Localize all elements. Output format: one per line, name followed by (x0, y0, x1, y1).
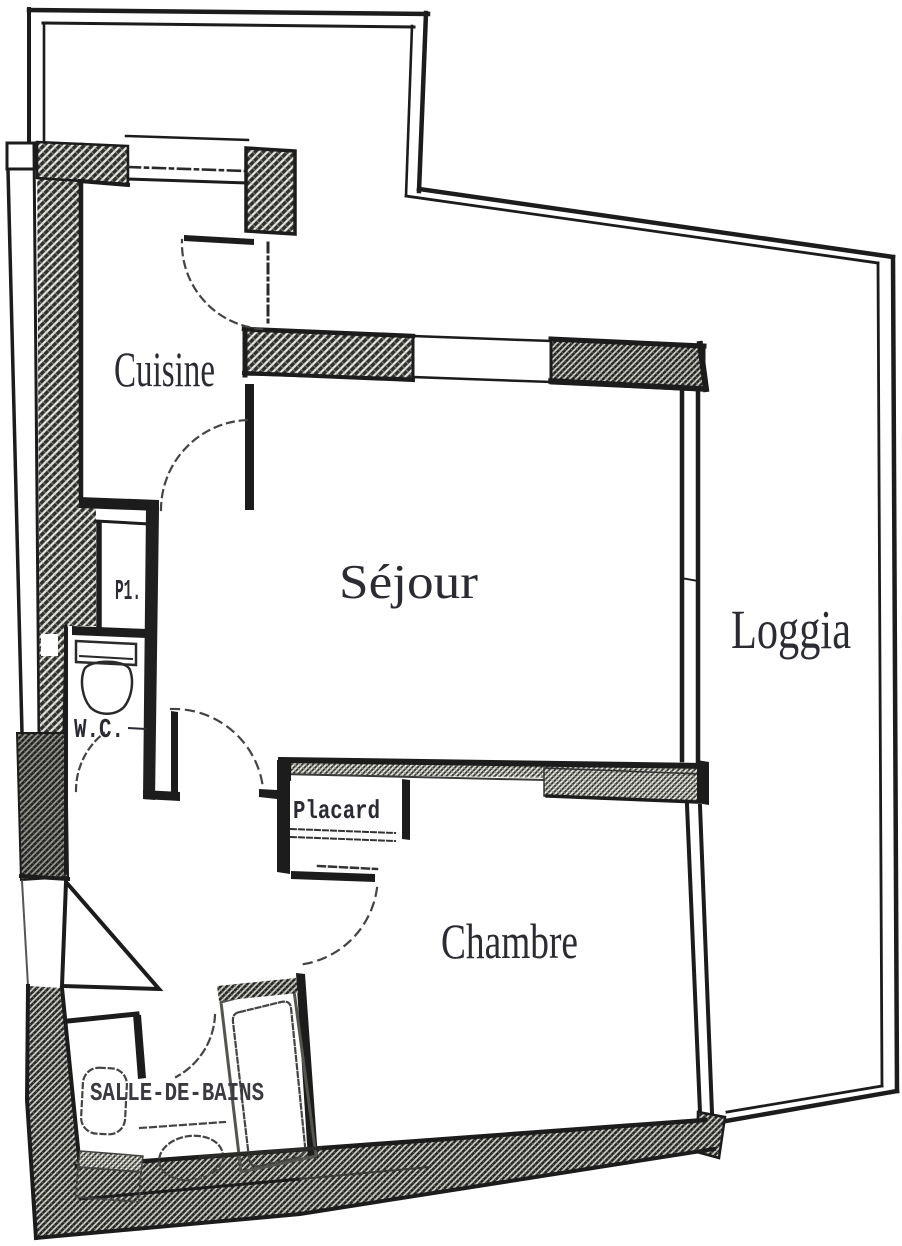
svg-text:Placard: Placard (293, 796, 380, 826)
svg-text:Séjour: Séjour (339, 554, 478, 609)
svg-text:SALLE-DE-BAINS: SALLE-DE-BAINS (90, 1078, 264, 1108)
svg-text:W.C.: W.C. (74, 716, 124, 746)
svg-text:Chambre: Chambre (441, 913, 578, 969)
svg-text:Loggia: Loggia (731, 599, 851, 660)
svg-text:P1.: P1. (115, 575, 141, 608)
svg-text:Cuisine: Cuisine (114, 341, 215, 397)
